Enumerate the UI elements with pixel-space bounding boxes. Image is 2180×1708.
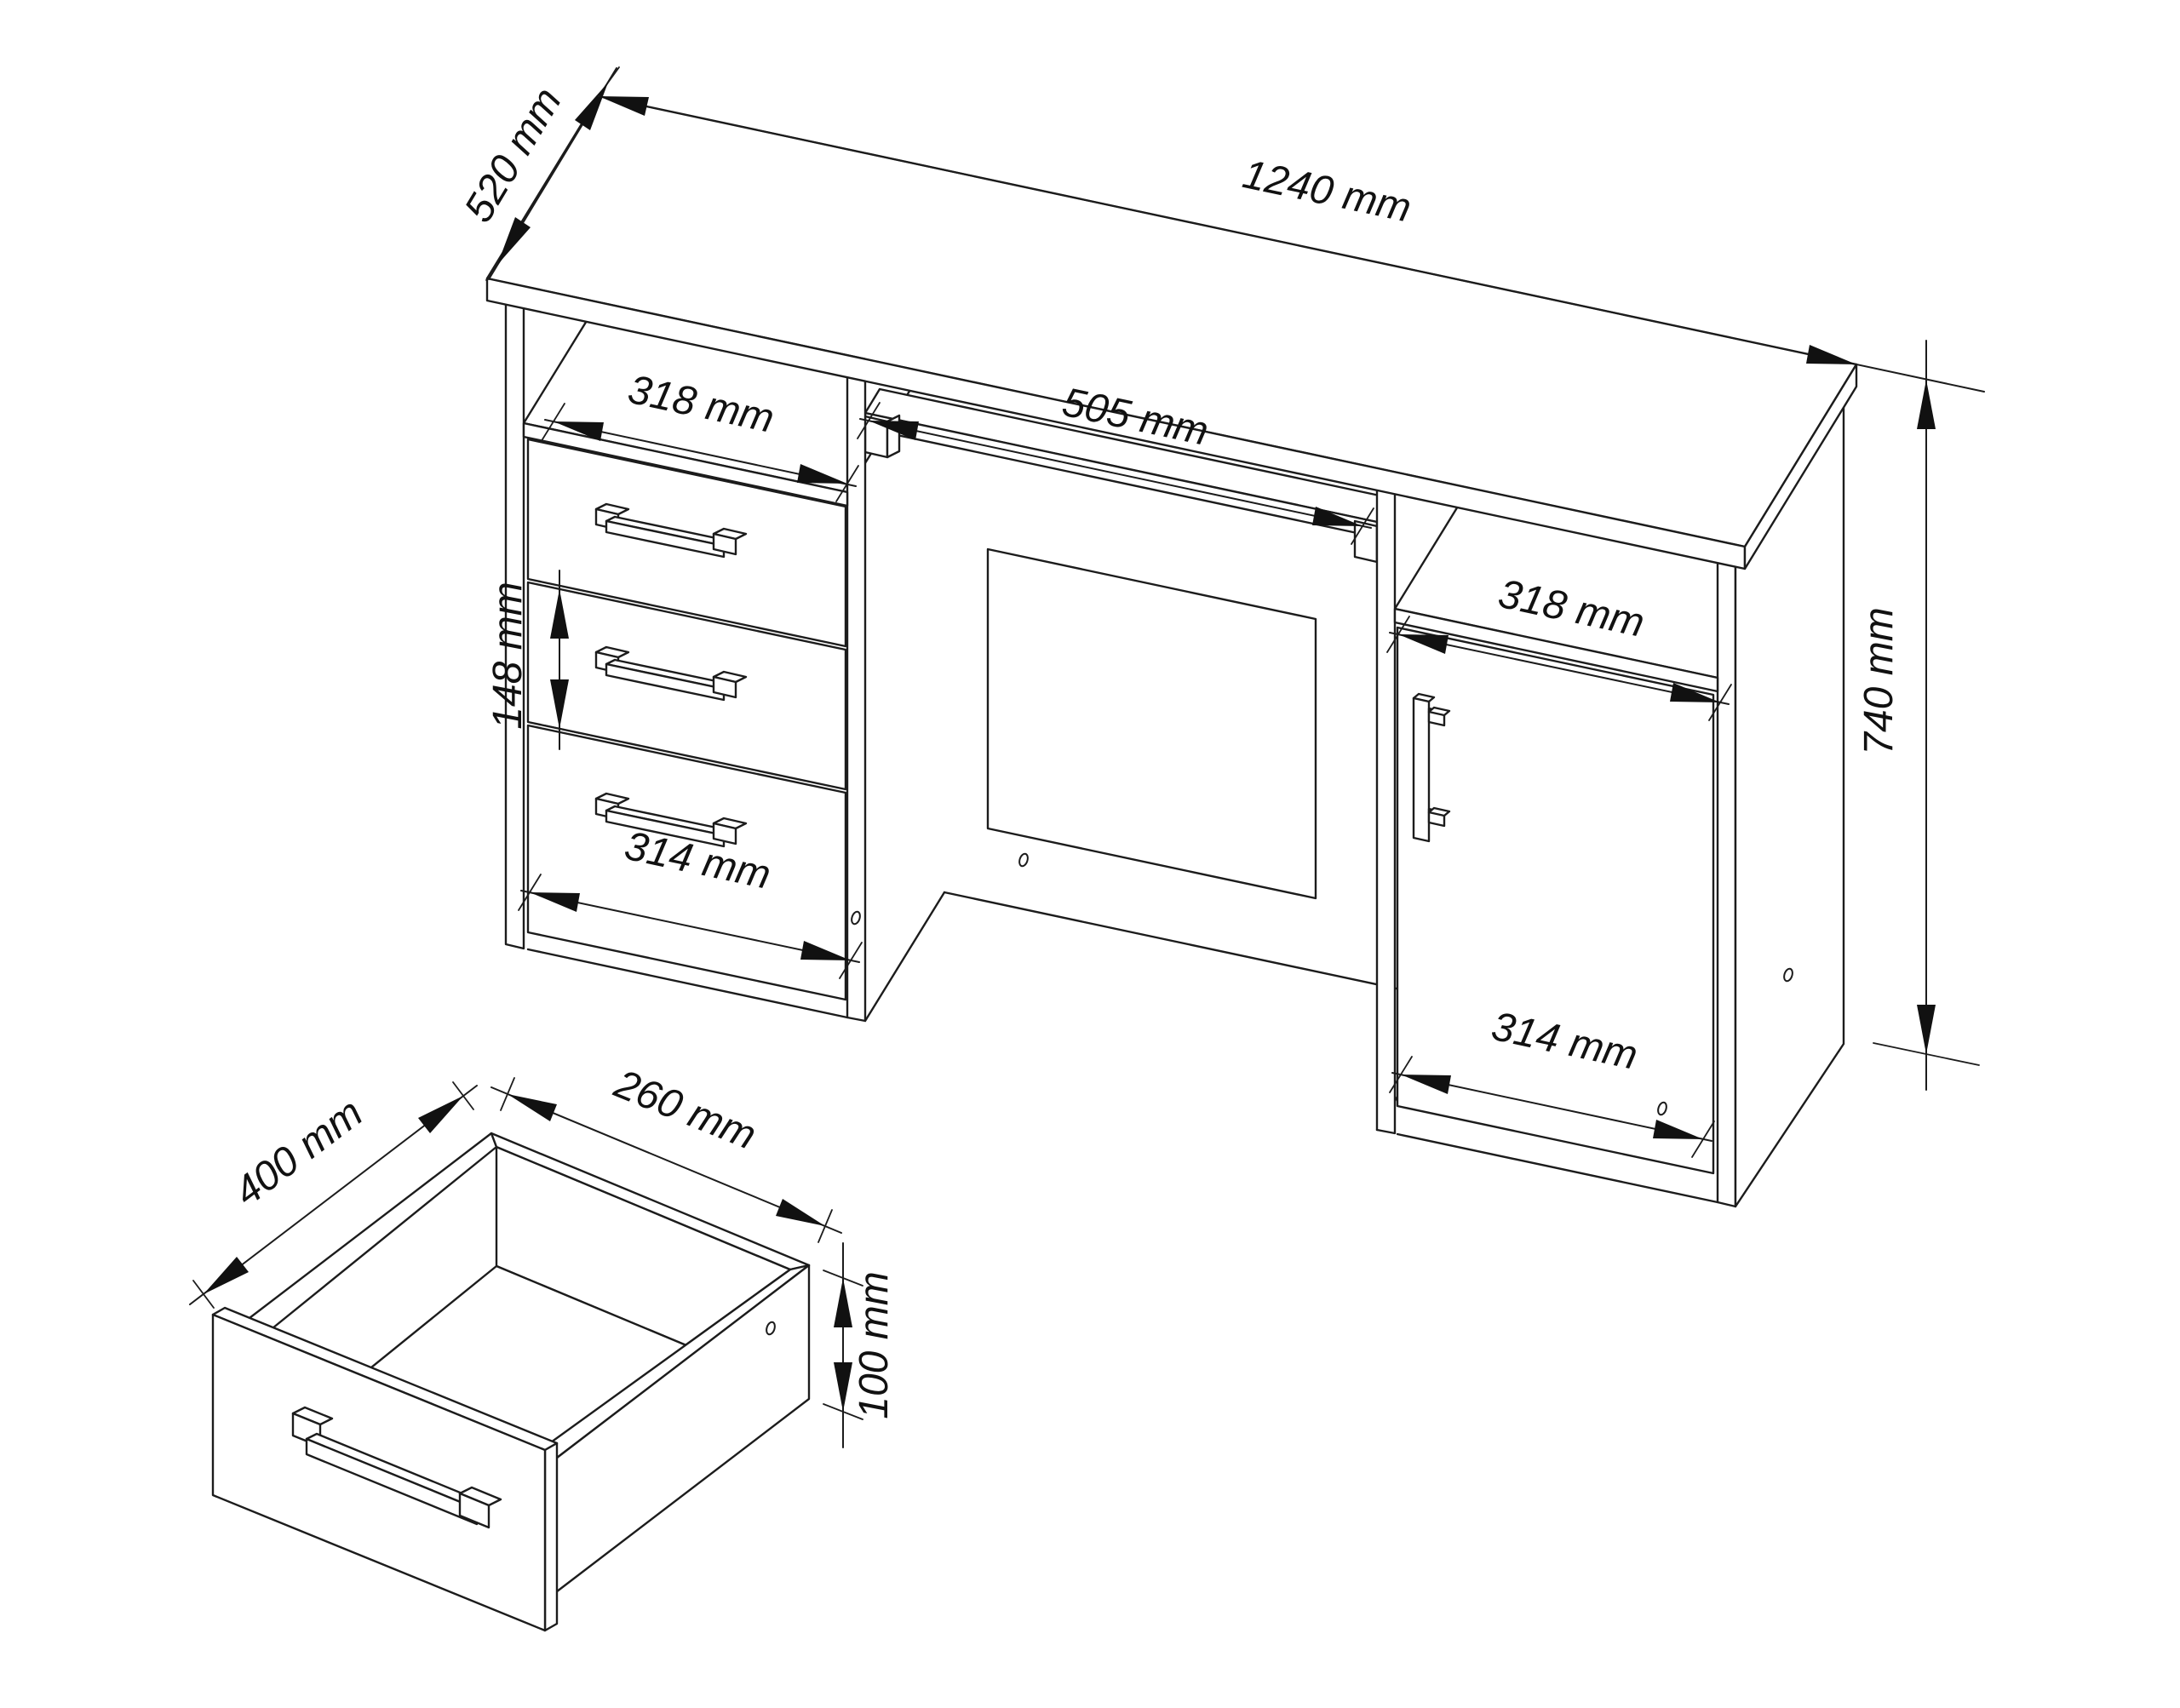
dim-label-desk-width: 1240 mm	[1239, 152, 1415, 231]
hole-icon	[1018, 852, 1029, 867]
dim-label-drawer-inner-width: 260 mm	[608, 1061, 763, 1158]
desk-interior-floor-lines	[865, 892, 1456, 1130]
desk-drawing: 520 mm 1240 mm 318 mm 505 mm	[456, 67, 1984, 1206]
dim-label-drawer-height: 148 mm	[485, 582, 531, 729]
dim-label-desk-height: 740 mm	[1856, 607, 1902, 754]
technical-drawing-page: 520 mm 1240 mm 318 mm 505 mm	[0, 0, 2180, 1708]
dim-drawer-inner-height: 100 mm	[823, 1243, 897, 1447]
desk-technical-drawing: 520 mm 1240 mm 318 mm 505 mm	[0, 0, 2180, 1708]
right-side-panel-edge	[1718, 560, 1735, 1206]
right-partition-edge	[1377, 488, 1395, 1133]
dim-label-drawer-inner-height: 100 mm	[852, 1271, 897, 1419]
modesty-panel	[988, 549, 1316, 898]
dim-desk-height: 740 mm	[1856, 341, 1979, 1090]
dim-label-drawer-depth: 400 mm	[226, 1090, 370, 1215]
drawer-detail-drawing: 400 mm 260 mm 100 mm	[190, 1061, 897, 1631]
